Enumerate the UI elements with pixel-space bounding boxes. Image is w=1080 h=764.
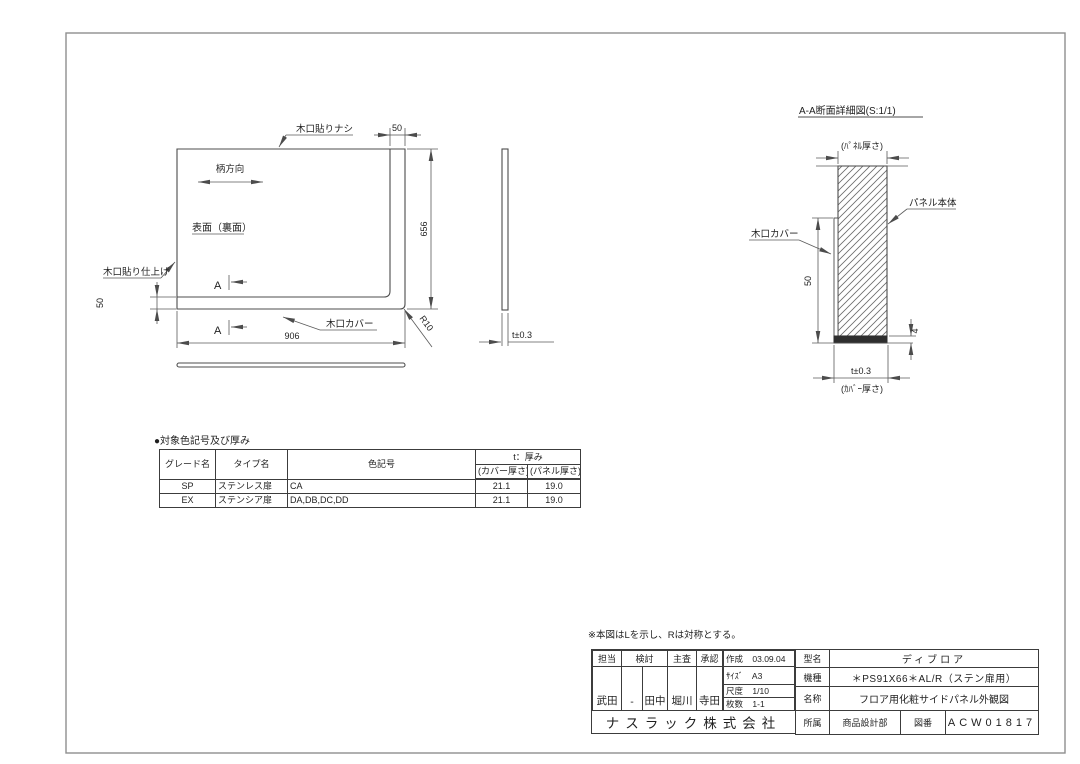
section-title: A-A断面詳細図(S:1/1) xyxy=(799,104,896,117)
dim-radius-r10: R10 xyxy=(418,314,436,333)
panel-thickness-cell: 19.0 xyxy=(528,494,581,508)
sheet-size: A3 xyxy=(752,671,762,681)
cover-strip-left xyxy=(834,218,838,336)
label-scale: 尺度 xyxy=(726,685,750,697)
col-header-cover-thickness: (カバー厚さ) xyxy=(476,465,528,480)
label-machine: 機種 xyxy=(796,668,830,687)
label-created: 作成 xyxy=(726,653,750,665)
color-code-cell: CA xyxy=(288,479,476,494)
label-sheets: 枚数 xyxy=(726,698,750,710)
type-cell: ステンレス扉 xyxy=(216,479,288,494)
color-code-cell: DA,DB,DC,DD xyxy=(288,494,476,508)
header-kento: 検討 xyxy=(622,651,668,667)
section-cover-label: 木口カバー xyxy=(751,228,799,240)
label-model: 型名 xyxy=(796,650,830,668)
type-cell: ステンシア扉 xyxy=(216,494,288,508)
dim-section-4: 4 xyxy=(910,328,920,333)
color-table: グレード名 タイプ名 色記号 t：厚み (カバー厚さ) (パネル厚さ) SP ス… xyxy=(159,449,581,508)
drawing-scale: 1/10 xyxy=(752,686,769,696)
sheet-frame xyxy=(66,33,1065,753)
table-row: SP ステンレス扉 CA 21.1 19.0 xyxy=(160,479,581,494)
cover-thickness-cell: 21.1 xyxy=(476,494,528,508)
signature-table: 担当 検討 主査 承認 武田 - 田中 堀川 寺田 xyxy=(592,650,723,711)
mirror-note: ※本図はLを示し、Rは対称とする。 xyxy=(588,627,741,641)
edge-left-label: 木口貼り仕上げ xyxy=(103,266,170,278)
label-dwgno: 図番 xyxy=(901,711,946,735)
drawing-number: ACW01817 xyxy=(946,711,1039,735)
signature-tanto: 武田 xyxy=(593,667,622,711)
dim-section-thickness: t±0.3 xyxy=(851,366,871,376)
section-mark-a2: A xyxy=(214,325,222,337)
title-block-right: 型名 ディブロア 機種 ＊PS91X66＊AL/R（ステン扉用） 名称 フロア用… xyxy=(795,649,1038,734)
section-view xyxy=(749,117,956,383)
header-tanto: 担当 xyxy=(593,651,622,667)
signature-kento-1: - xyxy=(622,667,643,711)
panel-body-hatched xyxy=(838,166,887,336)
drawing-info-table: 作成 03.09.04 ｻｲｽﾞ A3 尺度 1/10 枚数 1-1 xyxy=(723,650,795,711)
signature-kento-2: 田中 xyxy=(643,667,668,711)
created-date: 03.09.04 xyxy=(752,654,785,664)
label-dept: 所属 xyxy=(796,711,830,735)
section-mark-a1: A xyxy=(214,280,222,292)
panel-thickness-label: (ﾊﾟﾈﾙ厚さ) xyxy=(841,141,883,151)
dim-top-50: 50 xyxy=(392,123,402,133)
col-header-type: タイプ名 xyxy=(216,450,288,480)
label-name: 名称 xyxy=(796,687,830,711)
title-block-left: 担当 検討 主査 承認 武田 - 田中 堀川 寺田 作成 03.09.04 xyxy=(591,649,795,734)
model-name: ディブロア xyxy=(830,650,1039,668)
signature-shusa: 堀川 xyxy=(668,667,697,711)
signature-shonin: 寺田 xyxy=(697,667,723,711)
dim-left-50: 50 xyxy=(95,298,105,308)
dept-name: 商品設計部 xyxy=(830,711,901,735)
table-row: EX ステンシア扉 DA,DB,DC,DD 21.1 19.0 xyxy=(160,494,581,508)
col-header-panel-thickness: (パネル厚さ) xyxy=(528,465,581,480)
edge-top-label: 木口貼りナシ xyxy=(296,123,353,135)
sheet-count: 1-1 xyxy=(752,699,764,709)
dim-side-thickness: t±0.3 xyxy=(512,330,532,340)
col-header-color: 色記号 xyxy=(288,450,476,480)
panel-body-label: パネル本体 xyxy=(909,197,957,209)
color-table-title: ●対象色記号及び厚み xyxy=(154,432,250,447)
grain-label: 柄方向 xyxy=(216,163,245,175)
col-header-grade: グレード名 xyxy=(160,450,216,480)
drawing-name: フロア用化粧サイドパネル外観図 xyxy=(830,687,1039,711)
dim-bottom-906: 906 xyxy=(284,331,299,341)
surface-label: 表面（裏面） xyxy=(192,221,252,234)
header-shusa: 主査 xyxy=(668,651,697,667)
panel-side-view xyxy=(502,149,508,310)
drawing-page: 木口貼りナシ 柄方向 表面（裏面） 木口貼り仕上げ 木口カバー A A 50 6… xyxy=(0,0,1080,764)
machine-type: ＊PS91X66＊AL/R（ステン扉用） xyxy=(830,668,1039,687)
cover-thickness-cell: 21.1 xyxy=(476,479,528,494)
dim-section-50: 50 xyxy=(803,276,813,286)
spec-table: 型名 ディブロア 機種 ＊PS91X66＊AL/R（ステン扉用） 名称 フロア用… xyxy=(795,649,1039,735)
company-name: ナスラック株式会社 xyxy=(592,710,795,733)
cover-strip-bottom xyxy=(834,336,887,343)
title-block: 担当 検討 主査 承認 武田 - 田中 堀川 寺田 作成 03.09.04 xyxy=(591,649,1038,734)
main-view-dimensions xyxy=(103,128,554,348)
cover-thickness-label: (ｶﾊﾞｰ厚さ) xyxy=(841,384,883,394)
panel-thickness-cell: 19.0 xyxy=(528,479,581,494)
col-header-thickness: t：厚み xyxy=(476,450,581,465)
grade-cell: EX xyxy=(160,494,216,508)
cover-label: 木口カバー xyxy=(326,318,374,330)
grade-cell: SP xyxy=(160,479,216,494)
label-size: ｻｲｽﾞ xyxy=(726,670,750,682)
panel-bottom-view xyxy=(177,363,405,367)
header-shonin: 承認 xyxy=(697,651,723,667)
dim-right-656: 656 xyxy=(419,221,429,236)
